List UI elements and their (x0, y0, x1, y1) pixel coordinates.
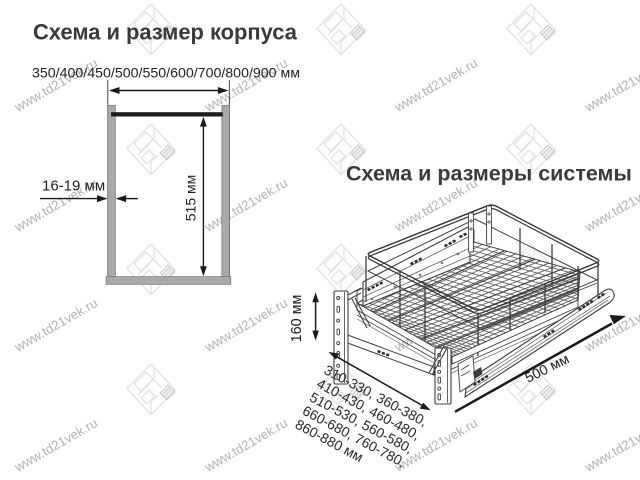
svg-text:515 мм: 515 мм (183, 175, 199, 222)
svg-text:www.td21vek.ru: www.td21vek.ru (11, 55, 100, 115)
svg-text:160 мм: 160 мм (289, 295, 305, 343)
svg-text:www.td21vek.ru: www.td21vek.ru (11, 295, 100, 355)
svg-text:www.td21vek.ru: www.td21vek.ru (201, 55, 290, 115)
svg-text:Схема и размер корпуса: Схема и размер корпуса (33, 20, 298, 45)
svg-text:www.td21vek.ru: www.td21vek.ru (581, 55, 640, 115)
svg-text:www.td21vek.ru: www.td21vek.ru (201, 175, 290, 235)
svg-text:www.td21vek.ru: www.td21vek.ru (581, 415, 640, 475)
svg-text:www.td21vek.ru: www.td21vek.ru (201, 415, 290, 475)
svg-text:16-19 мм: 16-19 мм (42, 178, 105, 195)
svg-text:www.td21vek.ru: www.td21vek.ru (201, 295, 290, 355)
svg-text:www.td21vek.ru: www.td21vek.ru (11, 415, 100, 475)
svg-text:Схема и размеры системы: Схема и размеры системы (346, 162, 632, 186)
svg-text:350/400/450/500/550/600/700/80: 350/400/450/500/550/600/700/800/900 мм (32, 66, 300, 82)
svg-text:www.td21vek.ru: www.td21vek.ru (391, 55, 480, 115)
